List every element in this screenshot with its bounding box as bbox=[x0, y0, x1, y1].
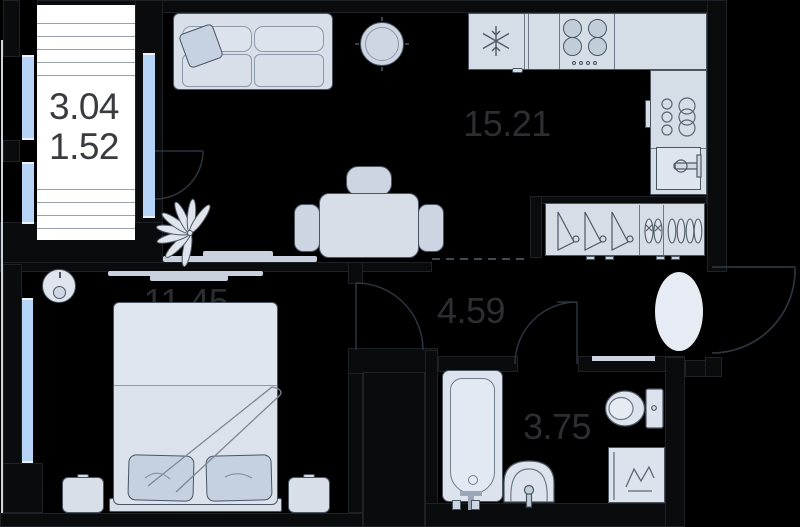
hob-knob bbox=[586, 61, 590, 65]
bathtub bbox=[442, 370, 503, 502]
hob-burner bbox=[588, 19, 607, 38]
wall-bathroom-left bbox=[425, 350, 438, 527]
wall-wardrobe-stub bbox=[530, 196, 542, 258]
bed-pillow-left bbox=[127, 454, 194, 502]
tv-bedroom bbox=[150, 275, 228, 281]
wall-bathroom-bottom bbox=[425, 503, 685, 527]
wall-left-stub-mid bbox=[3, 140, 20, 162]
kitchen-sink bbox=[656, 147, 701, 190]
wardrobe bbox=[545, 203, 705, 256]
balcony-window-left-lower bbox=[22, 162, 34, 224]
balcony-window-left-upper bbox=[22, 55, 34, 140]
hallway-area-label: 4.59 bbox=[437, 290, 505, 332]
tv-living bbox=[203, 251, 273, 258]
nightstand-right bbox=[288, 477, 330, 513]
wall-bedroom-corner bbox=[3, 463, 43, 513]
bed-blanket-top bbox=[114, 303, 277, 386]
wardrobe-foot bbox=[605, 256, 614, 260]
nightstand-tab bbox=[303, 474, 315, 478]
wardrobe-divider bbox=[639, 205, 640, 255]
washbasin-icon bbox=[504, 461, 554, 507]
fridge-handle bbox=[512, 68, 523, 73]
entrance-door-swing-icon bbox=[712, 267, 795, 353]
round-side-table bbox=[360, 22, 404, 66]
bathtub-drain bbox=[468, 475, 478, 485]
hob-burner bbox=[588, 37, 607, 56]
hallway-shoe-shelf bbox=[592, 356, 655, 361]
dining-chair-top bbox=[346, 166, 392, 196]
hob-burner bbox=[563, 19, 582, 38]
wall-entry-jamb bbox=[705, 357, 722, 377]
balcony-hatching-top bbox=[37, 11, 135, 85]
wardrobe-foot bbox=[586, 256, 595, 260]
robot-vacuum-bumper bbox=[53, 286, 66, 299]
wardrobe-divider bbox=[663, 205, 664, 255]
nightstand-left bbox=[62, 477, 104, 513]
counter-divider bbox=[524, 14, 525, 69]
counter-divider bbox=[528, 14, 529, 69]
bathtub-leg bbox=[471, 500, 480, 510]
sofa-seat-cushion bbox=[254, 54, 324, 87]
bathtub-leg bbox=[452, 500, 461, 510]
counter-divider bbox=[559, 14, 560, 69]
hallway-rug bbox=[655, 272, 703, 351]
living-kitchen-area-label: 15.21 bbox=[463, 103, 551, 145]
robot-vacuum-mark bbox=[59, 272, 61, 278]
bedroom-door-swing-icon bbox=[356, 283, 423, 350]
wall-bathroom-right bbox=[665, 357, 685, 527]
wall-bedroom-right-upper bbox=[348, 262, 363, 284]
building-outer-edge bbox=[1, 40, 3, 513]
balcony-window-inner bbox=[143, 53, 155, 218]
wall-left-stub-top bbox=[3, 0, 20, 57]
bathroom-door-swing-icon bbox=[515, 302, 577, 364]
dining-chair-right bbox=[418, 204, 444, 252]
robot-vacuum bbox=[42, 269, 76, 303]
round-table-top bbox=[365, 27, 399, 61]
dining-chair-left bbox=[294, 204, 320, 252]
counter-divider bbox=[614, 14, 615, 69]
wardrobe-foot bbox=[671, 256, 680, 260]
bedroom-window bbox=[22, 298, 33, 463]
hob-knob bbox=[579, 61, 583, 65]
sofa-back-cushion bbox=[254, 26, 324, 52]
wall-bedroom-bottom bbox=[0, 513, 363, 527]
floor-plan: 3.04 1.52 15.21 bbox=[0, 0, 800, 527]
dining-table bbox=[319, 193, 419, 258]
bathroom-area-label: 3.75 bbox=[523, 406, 591, 448]
toilet-icon bbox=[606, 389, 664, 428]
balcony-hatching-bottom bbox=[37, 177, 135, 239]
washing-machine bbox=[608, 447, 665, 503]
wardrobe-foot bbox=[656, 256, 665, 260]
hob-knob bbox=[572, 61, 576, 65]
sofa bbox=[173, 13, 333, 90]
counter-side-tab bbox=[645, 100, 651, 128]
hob-knob bbox=[593, 61, 597, 65]
washing-machine-door-edge bbox=[613, 452, 615, 500]
bed bbox=[113, 302, 278, 505]
nightstand-tab bbox=[77, 474, 89, 478]
wall-shaft bbox=[363, 372, 425, 527]
balcony-area-label: 3.04 bbox=[49, 86, 119, 128]
wall-bedroom-right-lower bbox=[348, 350, 363, 513]
bed-pillow-right bbox=[205, 454, 272, 502]
wall-kitchen-right bbox=[707, 0, 727, 272]
balcony-reduced-area-label: 1.52 bbox=[49, 126, 119, 168]
hob-burner bbox=[563, 37, 582, 56]
